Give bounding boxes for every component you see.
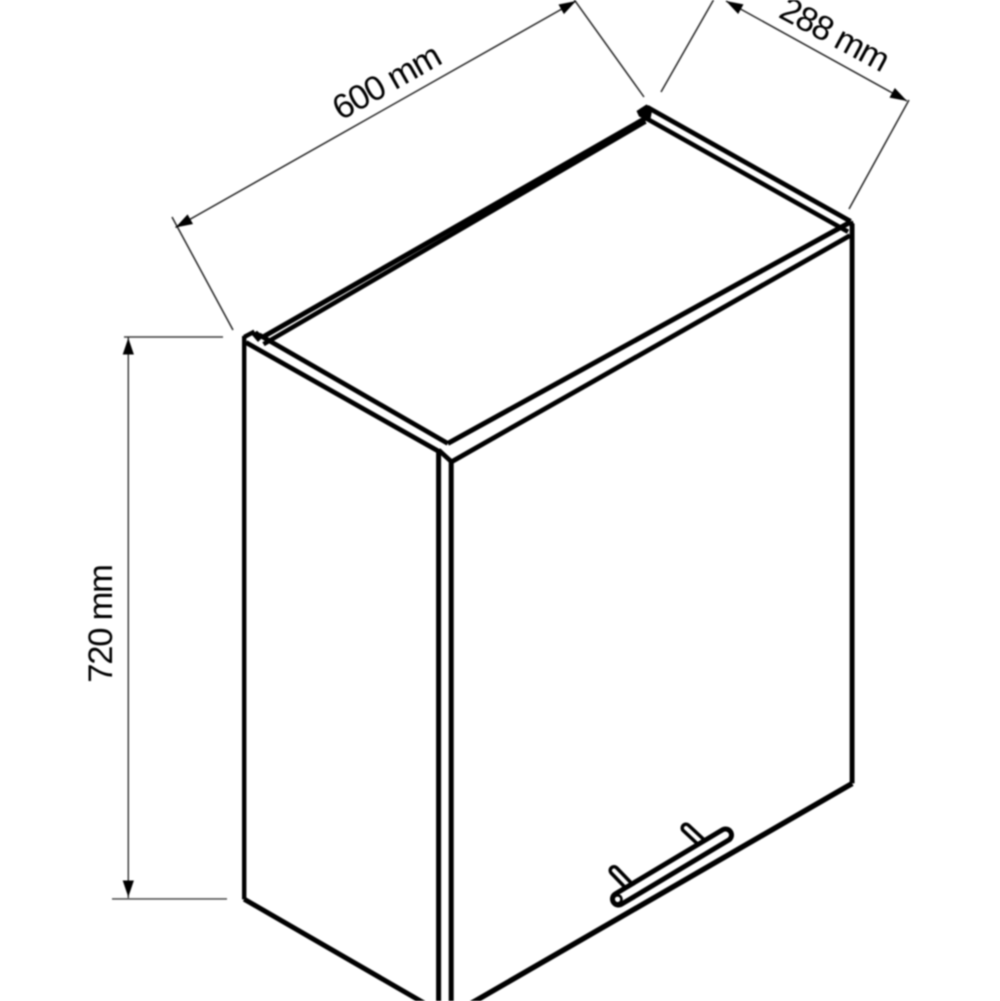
svg-text:720 mm: 720 mm — [82, 565, 120, 682]
